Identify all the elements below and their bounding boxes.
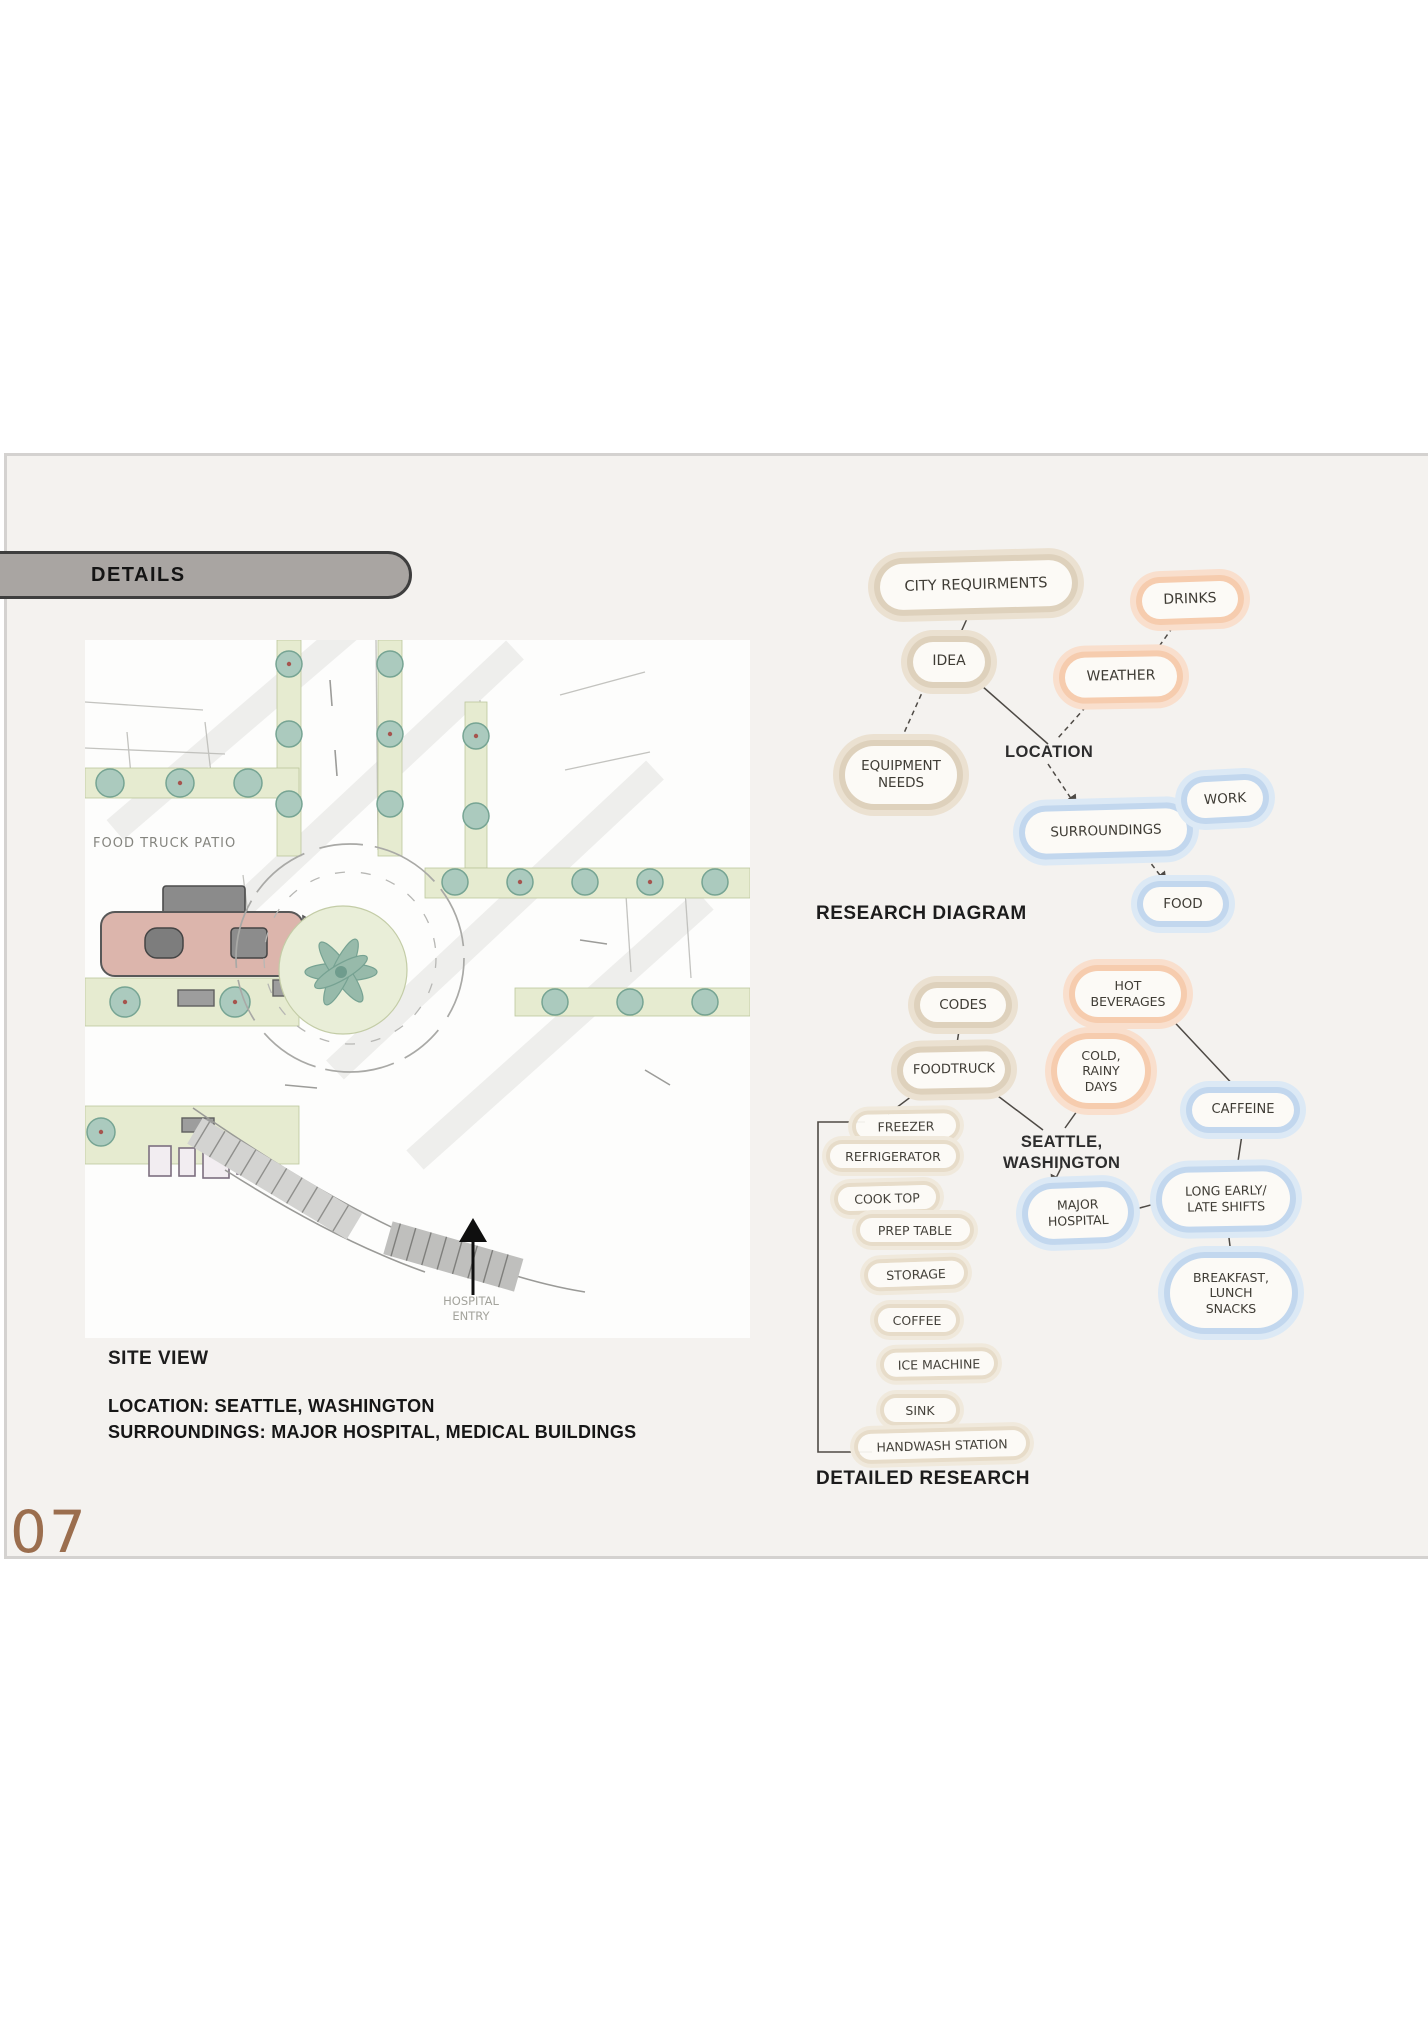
research-node-work: WORK	[1186, 779, 1264, 819]
research-node-weather: WEATHER	[1065, 656, 1178, 698]
location-text: LOCATION: SEATTLE, WASHINGTON	[108, 1396, 435, 1417]
research-node-surroundings: SURROUNDINGS	[1024, 808, 1187, 854]
equipment-pill-freezer: FREEZER	[856, 1113, 956, 1139]
detail-node-cold-rainy-days: COLD, RAINY DAYS	[1057, 1039, 1145, 1103]
seattle-washington-label: SEATTLE, WASHINGTON	[1003, 1132, 1120, 1175]
detail-node-major-hospital: MAJOR HOSPITAL	[1027, 1186, 1129, 1239]
location-typed-label: LOCATION	[1005, 742, 1093, 763]
research-node-city-requirments: CITY REQUIRMENTS	[879, 559, 1072, 610]
detail-node-breakfast-lunch-snacks: BREAKFAST, LUNCH SNACKS	[1170, 1258, 1292, 1328]
equipment-pill-refrigerator: REFRIGERATOR	[830, 1144, 956, 1168]
site-view-sketch	[85, 640, 750, 1338]
equipment-pill-handwash-station: HANDWASH STATION	[858, 1430, 1027, 1460]
food-truck-patio-label: FOOD TRUCK PATIO	[93, 836, 236, 851]
detail-node-codes: CODES	[920, 988, 1006, 1022]
research-diagram-caption: RESEARCH DIAGRAM	[816, 903, 1027, 925]
research-node-idea: IDEA	[913, 642, 985, 682]
details-tab: DETAILS	[0, 551, 412, 599]
equipment-pill-cook-top: COOK TOP	[838, 1185, 937, 1212]
equipment-pill-storage: STORAGE	[868, 1260, 965, 1287]
equipment-pill-prep-table: PREP TABLE	[860, 1218, 970, 1242]
surroundings-text: SURROUNDINGS: MAJOR HOSPITAL, MEDICAL BU…	[108, 1422, 636, 1443]
research-node-food: FOOD	[1143, 887, 1223, 921]
site-view-scan	[85, 640, 750, 1338]
page-number: 07	[10, 1498, 88, 1566]
equipment-pill-ice-machine: ICE MACHINE	[884, 1351, 994, 1377]
research-node-drinks: DRINKS	[1141, 580, 1238, 619]
detail-node-caffeine: CAFFEINE	[1192, 1093, 1294, 1127]
equipment-pill-coffee: COFFEE	[878, 1308, 956, 1332]
detailed-research-caption: DETAILED RESEARCH	[816, 1468, 1030, 1490]
detail-node-long-early-late-shifts: LONG EARLY/ LATE SHIFTS	[1162, 1171, 1291, 1227]
site-view-caption: SITE VIEW	[108, 1348, 209, 1370]
research-node-equipment-needs: EQUIPMENT NEEDS	[845, 746, 957, 804]
details-tab-label: DETAILS	[91, 564, 186, 587]
equipment-pill-sink: SINK	[884, 1398, 956, 1422]
detail-node-hot-beverages: HOT BEVERAGES	[1075, 971, 1181, 1017]
hospital-entry-label: HOSPITAL ENTRY	[428, 1294, 514, 1324]
portfolio-page: DETAILS	[0, 0, 1428, 2018]
detail-node-foodtruck: FOODTRUCK	[903, 1051, 1006, 1089]
